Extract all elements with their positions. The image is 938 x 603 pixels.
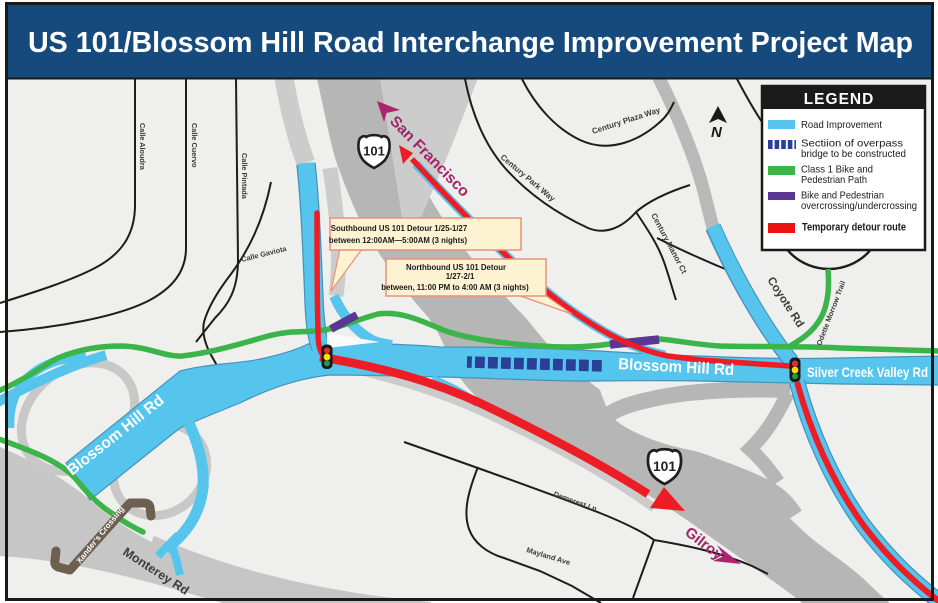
svg-text:Northbound US 101 Detour: Northbound US 101 Detour bbox=[406, 263, 506, 272]
svg-text:US 101/Blossom Hill Road Inter: US 101/Blossom Hill Road Interchange Imp… bbox=[28, 27, 913, 59]
svg-text:Southbound US 101 Detour 1/25-: Southbound US 101 Detour 1/25-1/27 bbox=[331, 224, 467, 233]
svg-text:between, 11:00 PM to 4:00 AM (: between, 11:00 PM to 4:00 AM (3 nights) bbox=[381, 283, 529, 292]
svg-text:Road Improvement: Road Improvement bbox=[801, 119, 882, 131]
svg-text:Temporary detour route: Temporary detour route bbox=[802, 222, 906, 234]
svg-text:Silver Creek Valley Rd: Silver Creek Valley Rd bbox=[807, 365, 928, 380]
svg-text:Pedestrian Path: Pedestrian Path bbox=[801, 174, 867, 186]
svg-text:101: 101 bbox=[363, 144, 385, 159]
svg-text:101: 101 bbox=[653, 459, 676, 474]
svg-text:overcrossing/undercrossing: overcrossing/undercrossing bbox=[801, 200, 917, 212]
svg-text:N: N bbox=[711, 124, 723, 141]
svg-text:Calle Pintada: Calle Pintada bbox=[240, 153, 249, 200]
svg-text:1/27-2/1: 1/27-2/1 bbox=[446, 272, 475, 281]
svg-text:Calle Cuervo: Calle Cuervo bbox=[190, 123, 199, 168]
svg-text:LEGEND: LEGEND bbox=[804, 91, 875, 108]
svg-text:Calle Aloudra: Calle Aloudra bbox=[138, 123, 147, 171]
svg-text:bridge to be constructed: bridge to be constructed bbox=[801, 148, 906, 160]
svg-text:between 12:00AM—5:00AM (3 nigh: between 12:00AM—5:00AM (3 nights) bbox=[329, 236, 468, 245]
